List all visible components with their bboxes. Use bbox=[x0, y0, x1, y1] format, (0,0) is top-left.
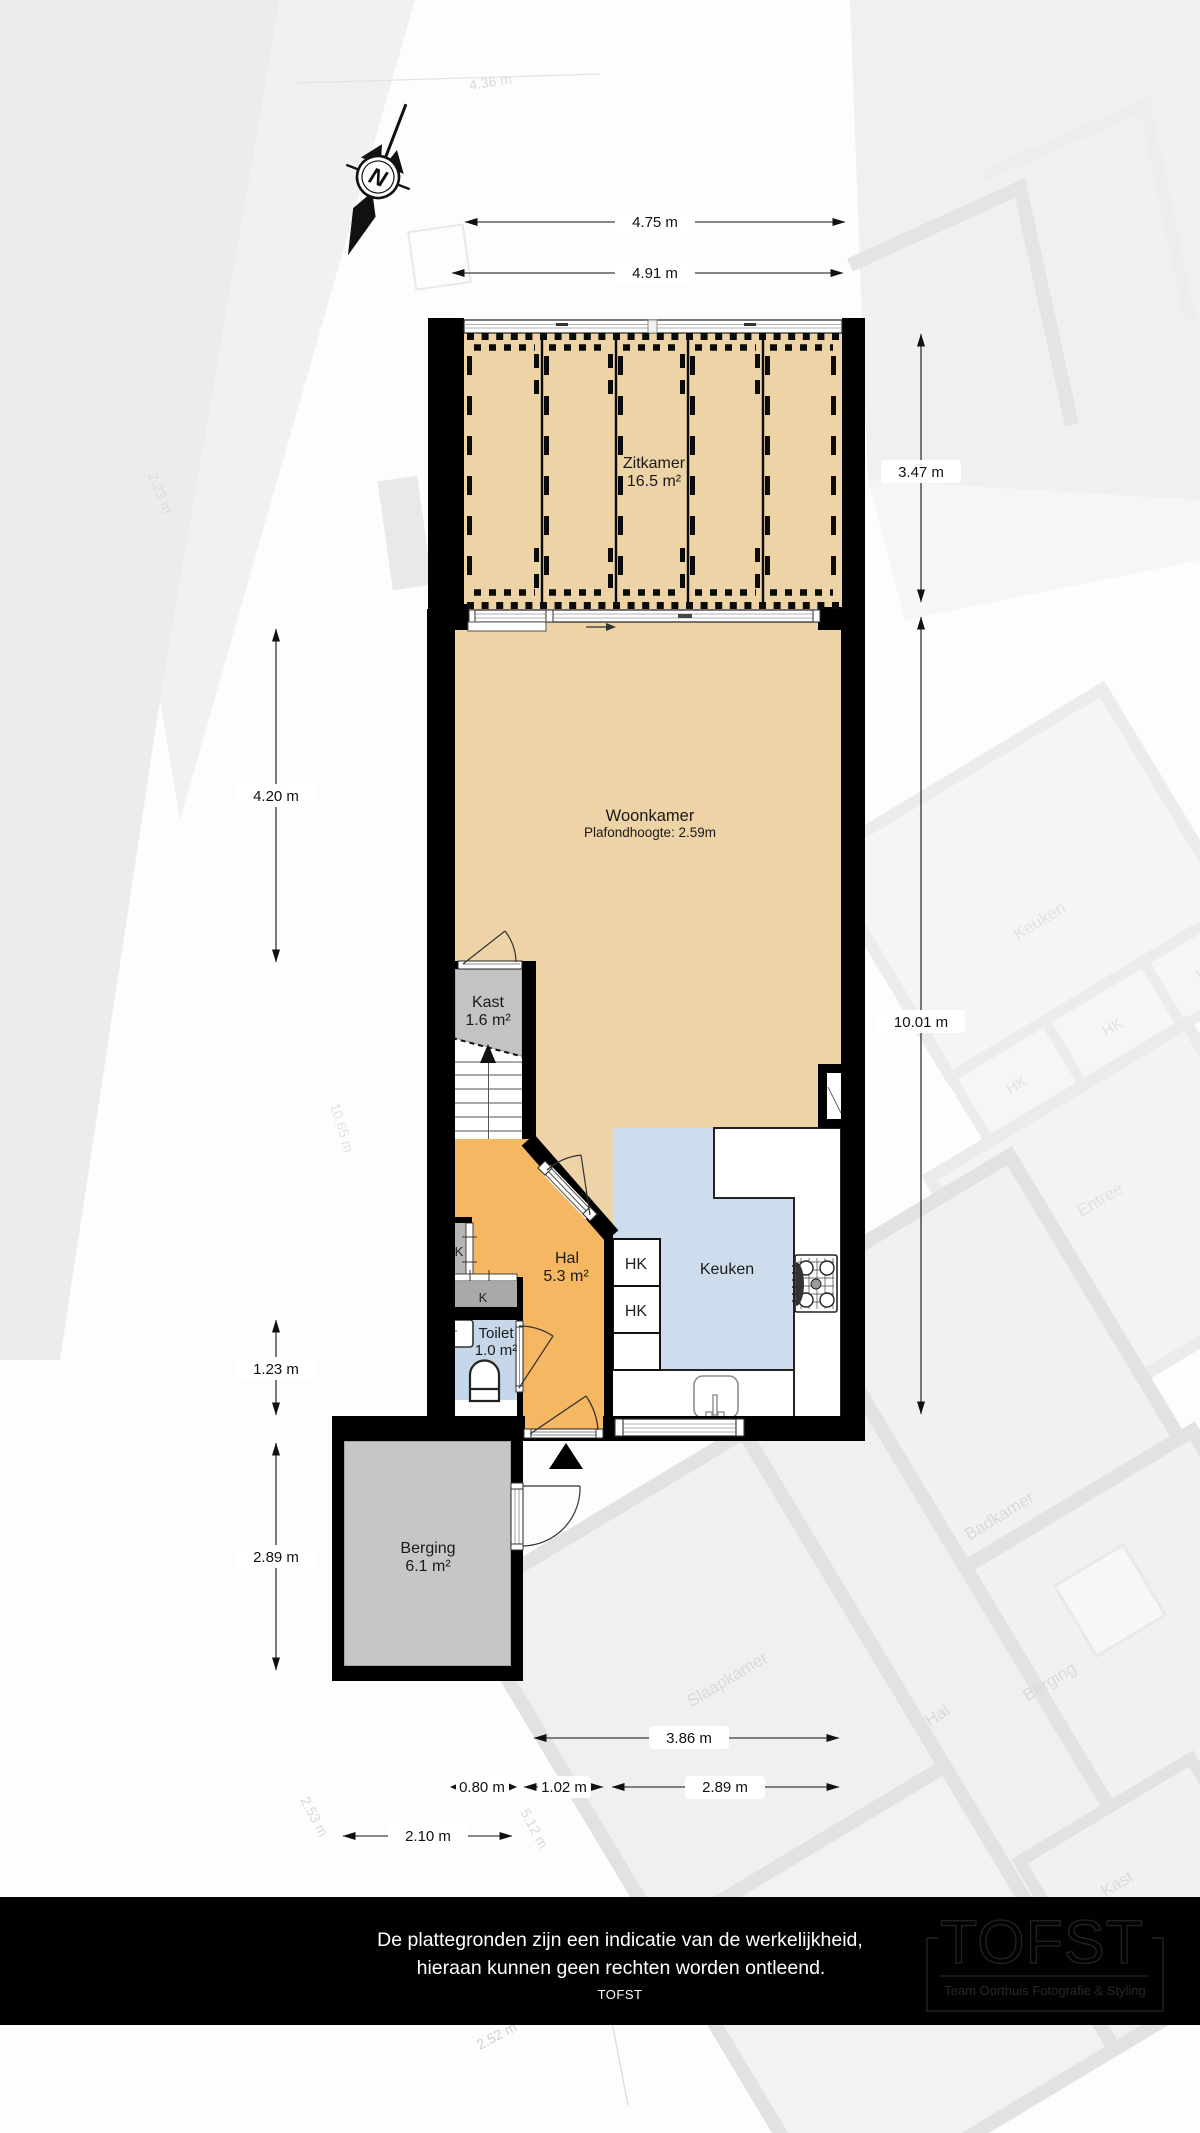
svg-text:Berging: Berging bbox=[400, 1540, 455, 1557]
svg-text:4.20 m: 4.20 m bbox=[253, 788, 299, 805]
svg-text:TOFST: TOFST bbox=[598, 1987, 643, 2002]
svg-text:Plafondhoogte: 2.59m: Plafondhoogte: 2.59m bbox=[584, 825, 716, 840]
svg-text:TOFST: TOFST bbox=[940, 1908, 1144, 1976]
svg-text:10.01 m: 10.01 m bbox=[894, 1014, 948, 1031]
svg-text:HK: HK bbox=[625, 1256, 648, 1273]
svg-text:1.6 m²: 1.6 m² bbox=[465, 1012, 511, 1029]
svg-text:Hal: Hal bbox=[555, 1250, 579, 1267]
svg-text:K: K bbox=[479, 1290, 488, 1305]
svg-text:3.47 m: 3.47 m bbox=[898, 464, 944, 481]
svg-text:0.80 m: 0.80 m bbox=[459, 1779, 505, 1796]
svg-text:Toilet: Toilet bbox=[478, 1325, 514, 1342]
svg-text:hieraan kunnen geen rechten wo: hieraan kunnen geen rechten worden ontle… bbox=[417, 1957, 826, 1979]
svg-text:De plattegronden zijn een indi: De plattegronden zijn een indicatie van … bbox=[377, 1929, 863, 1951]
svg-text:4.75 m: 4.75 m bbox=[632, 214, 678, 231]
svg-text:3.86 m: 3.86 m bbox=[666, 1730, 712, 1747]
svg-text:4.91 m: 4.91 m bbox=[632, 265, 678, 282]
svg-text:5.3 m²: 5.3 m² bbox=[543, 1268, 589, 1285]
svg-text:Woonkamer: Woonkamer bbox=[606, 807, 695, 825]
svg-text:Team Oorthuis Fotografie & Sty: Team Oorthuis Fotografie & Styling bbox=[944, 1983, 1146, 1998]
svg-text:1.23 m: 1.23 m bbox=[253, 1361, 299, 1378]
svg-text:16.5 m²: 16.5 m² bbox=[627, 473, 682, 490]
svg-text:Kast: Kast bbox=[472, 994, 505, 1011]
svg-text:Keuken: Keuken bbox=[700, 1261, 754, 1278]
svg-text:K: K bbox=[455, 1244, 464, 1259]
svg-text:2.89 m: 2.89 m bbox=[253, 1549, 299, 1566]
svg-text:2.10 m: 2.10 m bbox=[405, 1828, 451, 1845]
svg-text:2.89 m: 2.89 m bbox=[702, 1779, 748, 1796]
svg-text:1.0 m²: 1.0 m² bbox=[475, 1342, 518, 1359]
svg-text:HK: HK bbox=[625, 1303, 648, 1320]
svg-text:Zitkamer: Zitkamer bbox=[623, 455, 686, 472]
svg-text:6.1 m²: 6.1 m² bbox=[405, 1558, 451, 1575]
svg-text:1.02 m: 1.02 m bbox=[541, 1779, 587, 1796]
